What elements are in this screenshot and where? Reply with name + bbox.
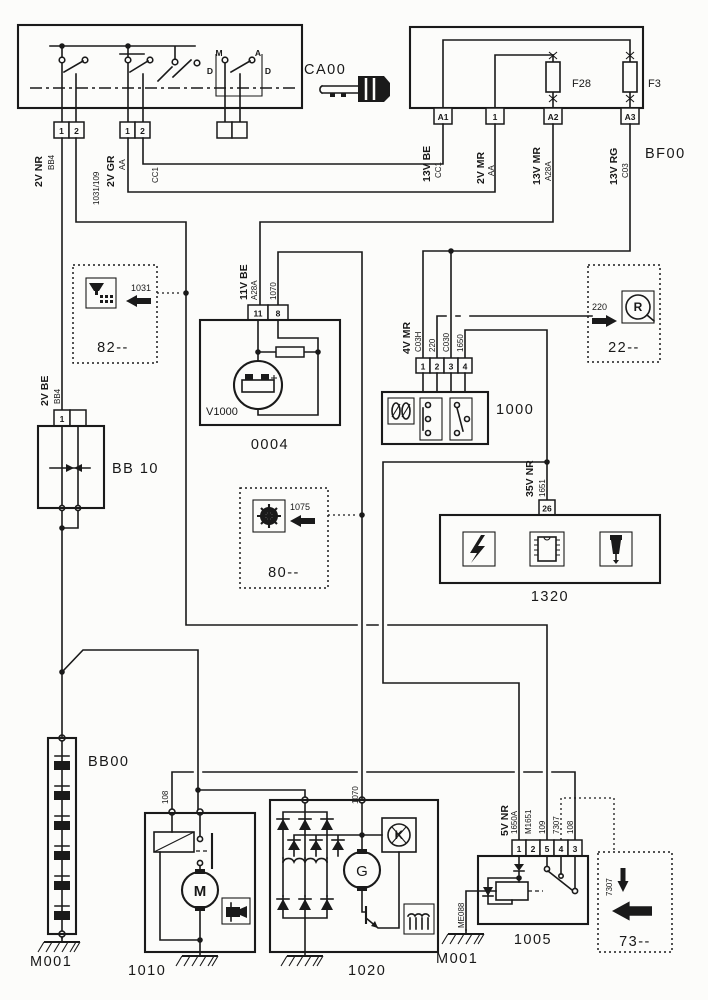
diagram-ref-80-label: 80-- [268,565,300,581]
arrow-right-icon [592,315,617,327]
contact-switch [196,833,212,869]
ignition-key-icon [320,76,390,102]
component-id-0004: 0004 [251,437,289,453]
wire-ref-1031: 1031 [131,283,151,293]
diagram-ref-73: 7307 73-- [561,798,672,952]
wire-label-109: 109 [538,820,547,834]
wire-label-11v-be: 11V BE [238,264,250,300]
wire-battery-positive [59,650,305,809]
busbar-bb10: 2V BE BB4 1 BB 10 [38,376,159,738]
wire-label-7307: 7307 [552,816,561,834]
connector-unlabeled [217,122,247,138]
ground-symbol-1010 [176,952,218,966]
connector-bf00: A1 1 A2 A3 [434,108,639,124]
gear-icon [253,500,285,532]
pin-8: 8 [276,309,281,319]
wire-ref-7307: 7307 [605,878,614,896]
alternator-1020: 1070 K [270,786,438,979]
wire-label-cc1: CC1 [151,166,160,183]
fuse-label-f28: F28 [572,78,591,90]
diode-symbol [514,864,524,871]
ground-symbol-m001-left [38,938,80,952]
diagram-ref-80: 1075 80-- [240,488,358,588]
wire-label-220: 220 [428,338,437,352]
switch-contact-1 [59,57,88,72]
contact-switch-1 [420,398,442,440]
wiring-diagram-svg: M A D D CA00 1 2 1 2 2V NR BB [0,0,708,1000]
starter-motor-icon [222,898,250,924]
wire-label-a28a-bf: A28A [544,161,553,181]
arrow-down-icon [618,868,629,892]
pin-1: 1 [493,112,498,122]
arrow-left-icon [290,515,315,527]
wire-label-aa: AA [118,159,127,170]
generator-symbol: G [344,849,380,891]
pin-5: 5 [545,844,550,854]
pin-a2: A2 [548,112,559,122]
switch-contact-4: M A D D [207,48,271,96]
diagram-ref-22: 220 R 22-- [588,265,660,362]
wire-label-m1651: M1651 [524,809,533,834]
wire-ref-1075: 1075 [290,502,310,512]
pin-2: 2 [140,126,145,136]
position-letter-a: A [255,48,261,58]
wire-ref-220: 220 [592,302,607,312]
pin-a3: A3 [625,112,636,122]
wire-label-bb4: BB4 [47,154,56,170]
switch-contact-2 [120,54,153,72]
fuse-label-f3: F3 [648,78,661,90]
wire-label-35v-nr: 35V NR [524,460,536,497]
diagram-ref-82: 1031 82-- [73,265,182,363]
wire-label-2v-mr: 2V MR [475,151,487,184]
relay-coil [154,832,194,852]
ground-label-m001-left: M001 [30,954,72,970]
resistor-symbol [276,347,304,357]
component-id-bb00: BB00 [88,754,129,770]
battery-symbol [234,361,282,409]
pin-4: 4 [559,844,564,854]
stator-winding [283,858,327,896]
wire-label-1031-109: 1031/109 [92,171,101,205]
diagram-ref-82-label: 82-- [97,340,129,356]
pin-1: 1 [60,414,65,424]
position-letter-d-left: D [207,66,213,76]
position-letter-m: M [215,48,222,58]
ecu-chip-icon [530,532,564,566]
icon-letter-r: R [634,300,643,314]
ground-symbol-1020 [281,952,323,966]
wire-label-1070: 1070 [269,282,278,300]
wire-label-1650a: 1650A [510,810,519,834]
pin-26: 26 [542,504,552,514]
ignition-switch-ca00: M A D D CA00 1 2 1 2 [18,25,390,138]
component-1000: 4V MR C03H 220 C030 1650 1 2 3 4 1 [382,321,534,444]
ground-symbol-m001-right [442,930,484,944]
motor-letter-m: M [194,883,207,900]
component-id-1020: 1020 [348,963,386,979]
wire-label-13v-rg: 13V RG [608,148,620,185]
fuse-f3-symbol [623,52,637,102]
pin-3: 3 [573,844,578,854]
starter-1010: 108 M 1010 [128,790,255,979]
wire-label-bb4-10: BB4 [53,388,62,404]
component-ref-v1000: V1000 [206,406,238,418]
ecu-1320: 35V NR 1651 26 1320 [440,460,660,605]
ground-label-m001-right: M001 [436,951,478,967]
injector-icon [600,532,632,566]
wire-label-108b: 108 [566,820,575,834]
wire-label-4v-mr: 4V MR [401,321,413,354]
generator-letter-g: G [356,863,368,880]
wire-label-1650: 1650 [456,334,465,352]
wire-label-c030: C030 [442,332,451,352]
fuse-box-bf00: F28 F3 A1 1 A2 A3 BF00 [410,27,686,162]
connector-2vgr: 1 2 [120,122,150,138]
wire-label-2v-gr: 2V GR [105,155,117,187]
wire-label-108: 108 [161,790,170,804]
pin-3: 3 [449,362,454,372]
component-ref-bf00: BF00 [645,146,686,162]
relay-1005: 5V NR 1650A M1651 109 7307 108 1 2 5 4 3… [436,805,588,967]
component-id-1005: 1005 [514,932,552,948]
pin-11: 11 [254,309,263,319]
component-id-bb10: BB 10 [112,461,159,477]
contact-switch-2 [450,398,472,440]
wire-label-2v-be: 2V BE [39,376,51,406]
diagram-ref-73-label: 73-- [619,934,651,950]
arrow-left-icon [126,295,151,307]
component-ref-ca00: CA00 [304,62,346,78]
wire-label-c03h: C03H [414,331,423,352]
component-id-1000: 1000 [496,402,534,418]
pin-a1: A1 [438,112,449,122]
pin-2: 2 [435,362,440,372]
wire-1031-109 [76,138,547,840]
motor-symbol: M [182,869,218,911]
diagram-ref-22-label: 22-- [608,340,640,356]
lightning-icon [463,532,495,566]
switch-contact-3 [158,59,200,81]
component-id-1010: 1010 [128,963,166,979]
wire-aa [128,124,495,192]
warning-lamp-k-symbol: K [382,818,416,852]
diagram-82-icon [86,278,116,308]
pin-1: 1 [517,844,522,854]
pin-4: 4 [463,362,468,372]
arrow-left-icon [612,901,652,920]
component-id-1320: 1320 [531,589,569,605]
wire-label-a28a-04: A28A [250,280,259,300]
busbar-bb00: BB00 M001 [30,735,129,970]
wire-label-13v-mr: 13V MR [531,147,543,185]
wire-1070 [278,252,365,800]
alternator-icon [404,904,434,934]
pin-1: 1 [421,362,426,372]
wire-label-me088: ME088 [457,902,466,928]
voltage-regulator-0004: 11V BE A28A 1070 11 8 V1000 0004 [200,264,340,453]
connector-2vnr: 1 2 [54,122,84,138]
indicator-icon [388,398,414,424]
wire-a28a [260,124,553,305]
pin-1: 1 [125,126,130,136]
pin-2: 2 [531,844,536,854]
wire-label-c03: C03 [621,163,630,178]
wire-label-2v-nr: 2V NR [33,156,45,187]
relay-coil-1005 [496,882,528,900]
relay-r-icon: R [622,291,654,323]
pin-2: 2 [74,126,79,136]
wire-cc1 [143,124,443,164]
wiring-diagram-page: M A D D CA00 1 2 1 2 2V NR BB [0,0,708,1000]
pin-1: 1 [59,126,64,136]
wire-label-1651: 1651 [538,479,547,497]
fuse-f28-symbol [546,52,560,102]
position-letter-d-right: D [265,66,271,76]
